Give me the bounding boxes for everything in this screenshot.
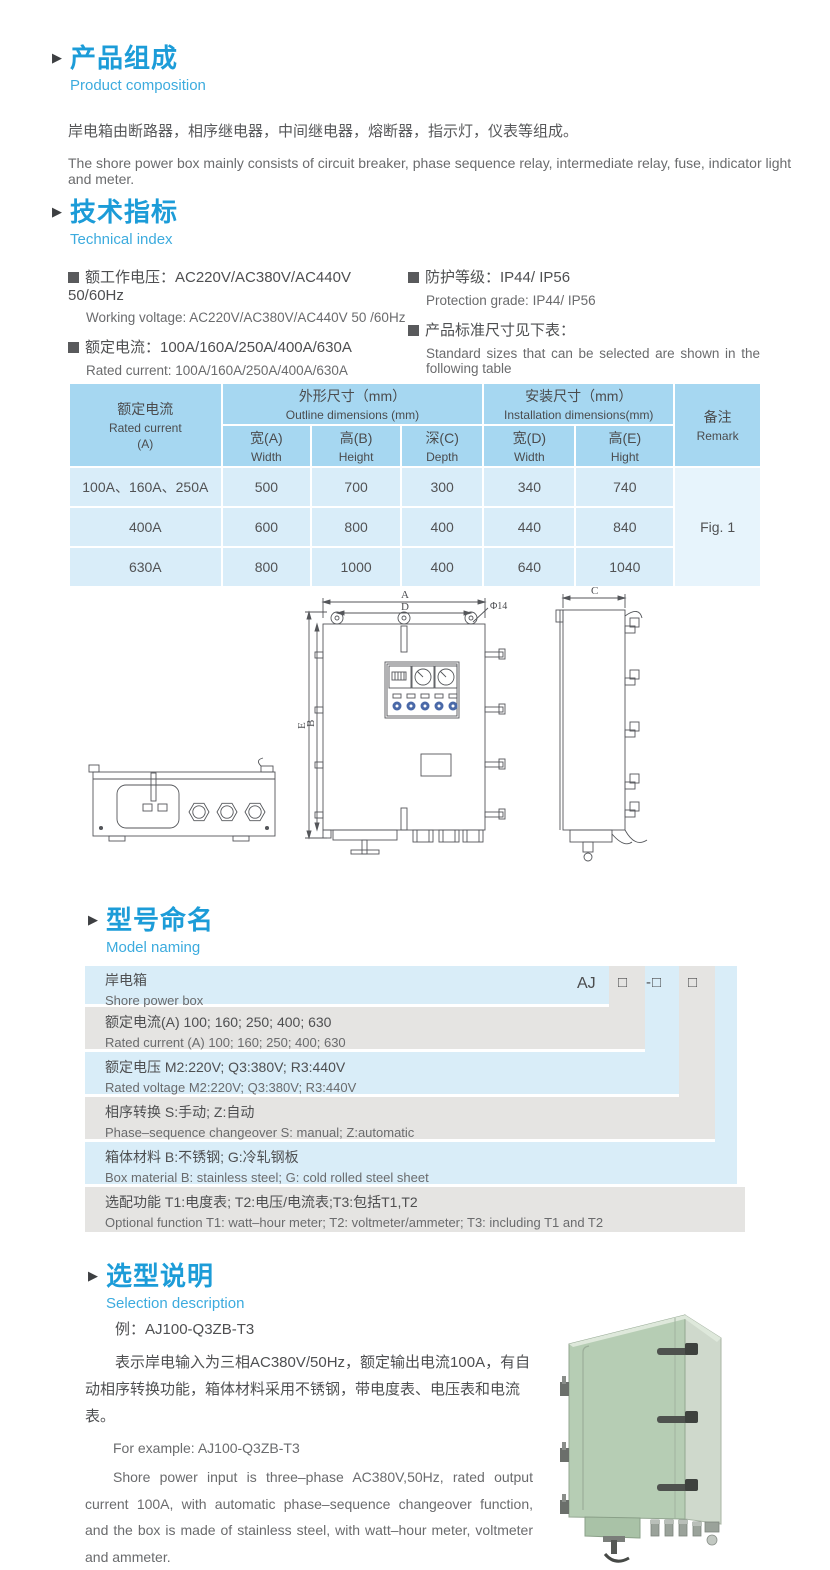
subcol-en: Height — [314, 450, 398, 464]
section-title-en: Technical index — [70, 231, 178, 248]
model-row-rated-current: 额定电流(A) 100; 160; 250; 400; 630 Rated cu… — [85, 1007, 645, 1049]
technical-drawing: A D Φ14 E B C — [65, 582, 765, 882]
spec-cn: 额定电流：100A/160A/250A/400A/630A — [85, 339, 352, 356]
model-row-product: 岸电箱 Shore power box — [85, 966, 609, 1004]
subcol-cn: 深(C) — [404, 428, 480, 448]
section-title-en: Model naming — [106, 939, 214, 956]
col-height-b: 高(B) Height — [312, 426, 400, 466]
cell-rated-current: 400A — [70, 508, 221, 546]
dim-label-b: B — [305, 720, 317, 727]
side-view — [556, 594, 647, 861]
section-model-naming: ▶ 型号命名 Model naming — [88, 906, 214, 956]
section-title-cn: 技术指标 — [70, 198, 178, 227]
cell-rated-current: 100A、160A、250A — [70, 468, 221, 506]
hinge-pins — [560, 1376, 569, 1514]
model-row-cn: 箱体材料 B:不锈钢; G:冷轧钢板 — [105, 1147, 737, 1167]
bullet-square-icon — [68, 272, 79, 283]
cell-depth-c: 400 — [402, 548, 482, 586]
cell-height-e: 740 — [576, 468, 673, 506]
dim-label-c: C — [591, 585, 598, 597]
cell-width-a: 500 — [223, 468, 311, 506]
model-code-box-1: □ — [618, 974, 628, 991]
subcol-en: Hight — [578, 450, 671, 464]
model-row-en: Rated voltage M2:220V; Q3:380V; R3:440V — [105, 1080, 679, 1095]
selection-paragraph-en: Shore power input is three–phase AC380V,… — [85, 1464, 533, 1570]
section-title-en: Selection description — [106, 1295, 244, 1312]
cell-height-b: 800 — [312, 508, 400, 546]
triangle-bullet-icon: ▶ — [52, 205, 62, 218]
model-row-cn: 额定电压 M2:220V; Q3:380V; R3:440V — [105, 1057, 679, 1077]
model-row-en: Box material B: stainless steel; G: cold… — [105, 1170, 737, 1185]
col-depth-c: 深(C) Depth — [402, 426, 482, 466]
model-row-box-material: 箱体材料 B:不锈钢; G:冷轧钢板 Box material B: stain… — [85, 1142, 737, 1184]
col-header-cn: 备注 — [677, 407, 758, 427]
col-header-cn: 安装尺寸（mm） — [486, 386, 671, 406]
cell-height-b: 700 — [312, 468, 400, 506]
col-header-cn: 额定电流 — [72, 399, 219, 419]
col-header-en: Remark — [677, 429, 758, 443]
cable-glands — [650, 1520, 702, 1536]
spec-cn: 产品标准尺寸见下表： — [425, 322, 575, 339]
spec-protection-grade: 防护等级：IP44/ IP56 Protection grade: IP44/ … — [408, 266, 760, 308]
col-header-unit: (A) — [72, 437, 219, 451]
section-heading: ▶ 技术指标 Technical index — [52, 198, 792, 248]
bullet-square-icon — [408, 272, 419, 283]
col-header-cn: 外形尺寸（mm） — [225, 386, 481, 406]
col-width-d: 宽(D) Width — [484, 426, 574, 466]
model-code-box-2: -□ — [646, 974, 662, 991]
spec-cn: 防护等级：IP44/ IP56 — [425, 269, 570, 286]
spec-en: Rated current: 100A/160A/250A/400A/630A — [86, 363, 408, 378]
section-selection-description: ▶ 选型说明 Selection description — [88, 1262, 244, 1312]
front-view — [305, 598, 505, 854]
col-rated-current: 额定电流 Rated current (A) — [70, 384, 221, 466]
bottom-view — [89, 758, 275, 841]
composition-text-en: The shore power box mainly consists of c… — [68, 155, 792, 187]
subcol-en: Width — [486, 450, 572, 464]
col-remark: 备注 Remark — [675, 384, 760, 466]
spec-working-voltage: 额工作电压：AC220V/AC380V/AC440V 50/60Hz Worki… — [68, 266, 408, 325]
cell-height-e: 1040 — [576, 548, 673, 586]
model-naming-diagram: 岸电箱 Shore power box AJ □ -□ □ 额定电流(A) 10… — [85, 966, 745, 1232]
subcol-cn: 宽(D) — [486, 428, 572, 448]
model-prefix: AJ — [577, 975, 596, 993]
col-height-e: 高(E) Hight — [576, 426, 673, 466]
table-row: 400A 600 800 400 440 840 — [70, 508, 760, 546]
spec-rated-current: 额定电流：100A/160A/250A/400A/630A Rated curr… — [68, 336, 408, 378]
cell-width-d: 340 — [484, 468, 574, 506]
cell-depth-c: 400 — [402, 508, 482, 546]
bullet-square-icon — [68, 342, 79, 353]
spec-en: Protection grade: IP44/ IP56 — [426, 293, 760, 308]
cell-height-b: 1000 — [312, 548, 400, 586]
selection-example-en: For example: AJ100-Q3ZB-T3 — [85, 1440, 533, 1456]
spec-cn: 额工作电压：AC220V/AC380V/AC440V 50/60Hz — [68, 269, 351, 304]
cell-width-a: 800 — [223, 548, 311, 586]
selection-paragraph-cn: 表示岸电输入为三相AC380V/50Hz，额定输出电流100A，有自动相序转换功… — [85, 1349, 533, 1430]
table-row: 630A 800 1000 400 640 1040 — [70, 548, 760, 586]
col-header-en: Installation dimensions(mm) — [486, 408, 671, 422]
subcol-en: Depth — [404, 450, 480, 464]
model-row-phase-changeover: 相序转换 S:手动; Z:自动 Phase–sequence changeove… — [85, 1097, 715, 1139]
col-header-en: Rated current — [72, 421, 219, 435]
cell-width-a: 600 — [223, 508, 311, 546]
model-product-en: Shore power box — [105, 993, 609, 1008]
triangle-bullet-icon: ▶ — [88, 1269, 98, 1282]
model-row-en: Phase–sequence changeover S: manual; Z:a… — [105, 1125, 715, 1140]
section-technical-index: ▶ 技术指标 Technical index 额工作电压：AC220V/AC38… — [52, 198, 792, 376]
spec-standard-sizes: 产品标准尺寸见下表： Standard sizes that can be se… — [408, 319, 760, 376]
subcol-cn: 高(E) — [578, 428, 671, 448]
selection-example-cn: 例：AJ100-Q3ZB-T3 — [85, 1318, 533, 1339]
table-row: 100A、160A、250A 500 700 300 340 740 Fig. … — [70, 468, 760, 506]
col-installation-dimensions: 安装尺寸（mm） Installation dimensions(mm) — [484, 384, 673, 424]
model-row-en: Rated current (A) 100; 160; 250; 400; 63… — [105, 1035, 645, 1050]
section-title-cn: 型号命名 — [106, 906, 214, 935]
triangle-bullet-icon: ▶ — [88, 913, 98, 926]
section-product-composition: ▶ 产品组成 Product composition 岸电箱由断路器，相序继电器… — [52, 44, 792, 187]
section-heading: ▶ 产品组成 Product composition — [52, 44, 792, 94]
model-row-rated-voltage: 额定电压 M2:220V; Q3:380V; R3:440V Rated vol… — [85, 1052, 679, 1094]
col-outline-dimensions: 外形尺寸（mm） Outline dimensions (mm) — [223, 384, 483, 424]
selection-text: 例：AJ100-Q3ZB-T3 表示岸电输入为三相AC380V/50Hz，额定输… — [85, 1318, 533, 1570]
indicator-lights — [393, 694, 458, 711]
page-title-cn: 产品组成 — [70, 44, 206, 73]
spec-en: Working voltage: AC220V/AC380V/AC440V 50… — [86, 310, 408, 325]
model-code-box-3: □ — [688, 974, 698, 991]
model-row-cn: 额定电流(A) 100; 160; 250; 400; 630 — [105, 1012, 645, 1032]
subcol-cn: 高(B) — [314, 428, 398, 448]
model-row-cn: 相序转换 S:手动; Z:自动 — [105, 1102, 715, 1122]
cell-depth-c: 300 — [402, 468, 482, 506]
hole-diameter-label: Φ14 — [490, 601, 507, 612]
model-row-cn: 选配功能 T1:电度表; T2:电压/电流表;T3:包括T1,T2 — [105, 1192, 745, 1212]
bullet-square-icon — [408, 325, 419, 336]
cell-remark: Fig. 1 — [675, 468, 760, 586]
col-width-a: 宽(A) Width — [223, 426, 311, 466]
section-title-cn: 选型说明 — [106, 1262, 244, 1291]
page-title-en: Product composition — [70, 77, 206, 94]
dimensions-table: 额定电流 Rated current (A) 外形尺寸（mm） Outline … — [68, 382, 762, 588]
triangle-bullet-icon: ▶ — [52, 51, 62, 64]
cell-width-d: 440 — [484, 508, 574, 546]
model-row-optional-function: 选配功能 T1:电度表; T2:电压/电流表;T3:包括T1,T2 Option… — [85, 1187, 745, 1232]
cell-height-e: 840 — [576, 508, 673, 546]
product-photo-shore-power-box — [545, 1298, 805, 1566]
cell-width-d: 640 — [484, 548, 574, 586]
dim-label-d: D — [401, 601, 409, 613]
model-product-cn: 岸电箱 — [105, 970, 609, 990]
subcol-cn: 宽(A) — [225, 428, 309, 448]
spec-en: Standard sizes that can be selected are … — [426, 346, 760, 376]
col-header-en: Outline dimensions (mm) — [225, 408, 481, 422]
subcol-en: Width — [225, 450, 309, 464]
dim-label-a: A — [401, 589, 409, 601]
cell-rated-current: 630A — [70, 548, 221, 586]
model-row-en: Optional function T1: watt–hour meter; T… — [105, 1215, 745, 1230]
composition-text-cn: 岸电箱由断路器，相序继电器，中间继电器，熔断器，指示灯，仪表等组成。 — [68, 120, 792, 141]
